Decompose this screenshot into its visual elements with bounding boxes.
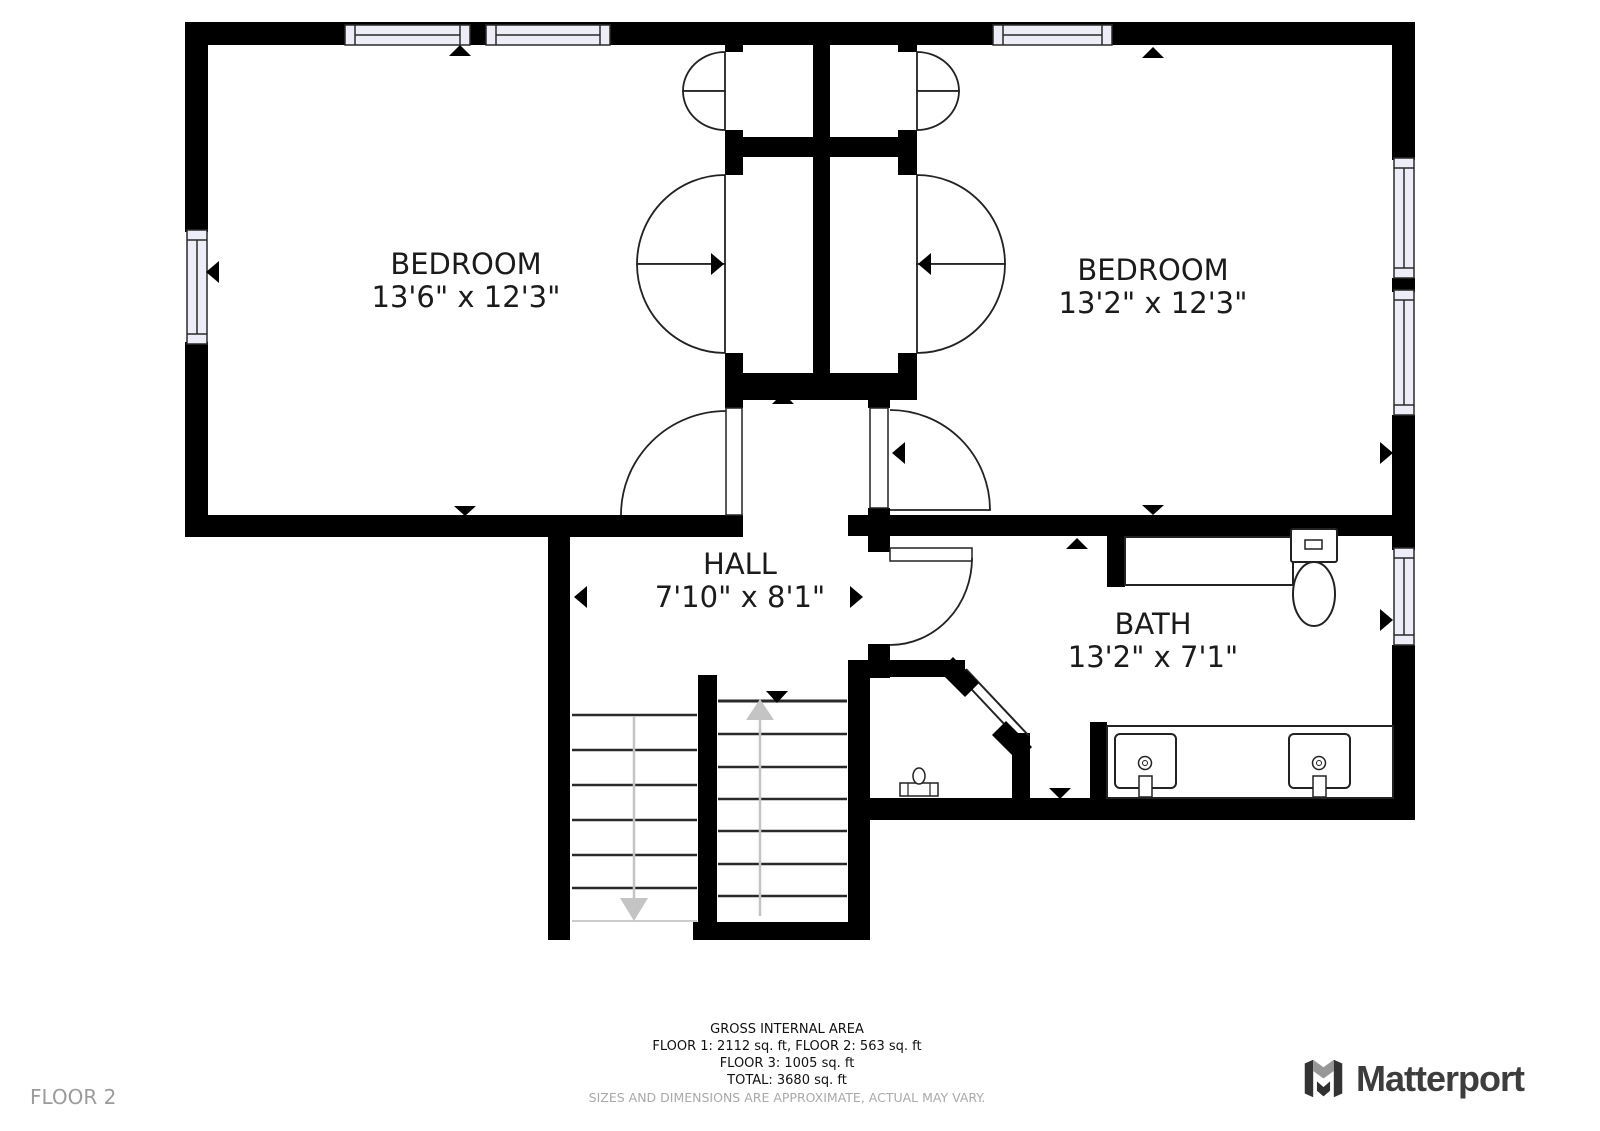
floor-label: FLOOR 2 <box>30 1085 116 1109</box>
wall <box>698 675 717 940</box>
bath-counter <box>1125 537 1293 585</box>
wall <box>725 22 743 52</box>
door-opening <box>725 175 743 353</box>
walls <box>185 22 1415 940</box>
window <box>345 25 470 45</box>
closet-door-arc <box>917 175 1005 264</box>
wall <box>693 922 870 940</box>
marker-arrow <box>1142 505 1164 515</box>
wall <box>1090 722 1107 820</box>
sink <box>1115 734 1176 797</box>
room-dims: 13'2" x 7'1" <box>1068 641 1238 674</box>
room-dims: 13'6" x 12'3" <box>372 281 561 314</box>
wall <box>898 22 917 52</box>
window <box>187 230 207 344</box>
marker-arrow <box>1066 538 1088 549</box>
area-line-2: FLOOR 3: 1005 sq. ft <box>589 1055 986 1072</box>
shower-head-icon <box>900 768 938 796</box>
door-leaf <box>726 408 742 515</box>
marker-arrow <box>454 506 476 516</box>
faucet <box>1139 776 1152 797</box>
wall <box>185 45 208 232</box>
marker-arrow <box>206 261 219 283</box>
sink <box>1289 734 1350 797</box>
area-disclaimer: SIZES AND DIMENSIONS ARE APPROXIMATE, AC… <box>589 1089 986 1106</box>
wall <box>725 137 917 157</box>
wall <box>1392 45 1415 160</box>
closet-door-arc <box>637 264 725 353</box>
floorplan-page: BEDROOM 13'6" x 12'3" BEDROOM 13'2" x 12… <box>0 0 1600 1131</box>
wall <box>848 660 870 940</box>
window <box>993 25 1112 45</box>
wall <box>868 393 890 408</box>
wall <box>185 342 208 537</box>
closet-door-arc <box>917 91 959 130</box>
window <box>1394 158 1414 278</box>
closet-door-arc <box>917 52 959 91</box>
door-opening <box>898 52 917 130</box>
area-line-1: FLOOR 1: 2112 sq. ft, FLOOR 2: 563 sq. f… <box>589 1038 986 1055</box>
room-name: BEDROOM <box>372 248 561 281</box>
wall <box>1392 645 1415 820</box>
room-dims: 7'10" x 8'1" <box>655 581 825 614</box>
window <box>486 25 610 45</box>
window <box>1394 548 1414 645</box>
closet-door-arc <box>917 264 1005 353</box>
room-name: BEDROOM <box>1059 254 1248 287</box>
wall <box>813 22 830 400</box>
stair-treads-up <box>718 701 847 896</box>
matterport-logo-text: Matterport <box>1356 1058 1524 1100</box>
dimension-markers <box>206 45 1393 799</box>
door-opening <box>898 175 917 353</box>
marker-arrow <box>892 442 905 464</box>
matterport-logo: Matterport <box>1301 1056 1524 1101</box>
wall <box>185 515 743 537</box>
area-title: GROSS INTERNAL AREA <box>589 1021 986 1038</box>
wall <box>868 508 890 552</box>
door-opening <box>868 552 890 644</box>
door-arc <box>890 558 972 645</box>
door-opening <box>725 52 743 130</box>
room-name: HALL <box>655 548 825 581</box>
room-label-bedroom-2: BEDROOM 13'2" x 12'3" <box>1059 254 1248 320</box>
wall <box>548 515 570 940</box>
closet-door-arc <box>683 52 725 91</box>
wall <box>1107 536 1125 587</box>
door-leaf <box>870 408 888 508</box>
wall <box>848 798 1415 820</box>
room-dims: 13'2" x 12'3" <box>1059 287 1248 320</box>
flush-button <box>1305 540 1322 549</box>
marker-arrow <box>1049 788 1071 799</box>
area-line-3: TOTAL: 3680 sq. ft <box>589 1072 986 1089</box>
room-label-bath: BATH 13'2" x 7'1" <box>1068 608 1238 674</box>
marker-arrow <box>449 45 471 56</box>
area-summary: GROSS INTERNAL AREA FLOOR 1: 2112 sq. ft… <box>589 1021 986 1106</box>
window <box>1394 290 1414 415</box>
room-label-hall: HALL 7'10" x 8'1" <box>655 548 825 614</box>
marker-arrow <box>574 586 587 608</box>
room-label-bedroom-1: BEDROOM 13'6" x 12'3" <box>372 248 561 314</box>
stair-direction-arrow-down <box>620 716 648 921</box>
closet-door-arc <box>637 175 725 264</box>
door-leaf <box>890 548 972 561</box>
closet-door-arc <box>683 91 725 130</box>
marker-arrow <box>1142 47 1164 58</box>
marker-arrow <box>1380 442 1393 464</box>
marker-arrow <box>1380 609 1393 631</box>
toilet <box>1291 529 1337 626</box>
shower-enclosure <box>939 657 1032 761</box>
stair-direction-arrow-up <box>746 699 774 916</box>
door-arc <box>621 411 726 515</box>
marker-arrow <box>850 586 863 608</box>
matterport-logo-icon <box>1301 1056 1346 1101</box>
room-name: BATH <box>1068 608 1238 641</box>
faucet <box>1313 776 1326 797</box>
